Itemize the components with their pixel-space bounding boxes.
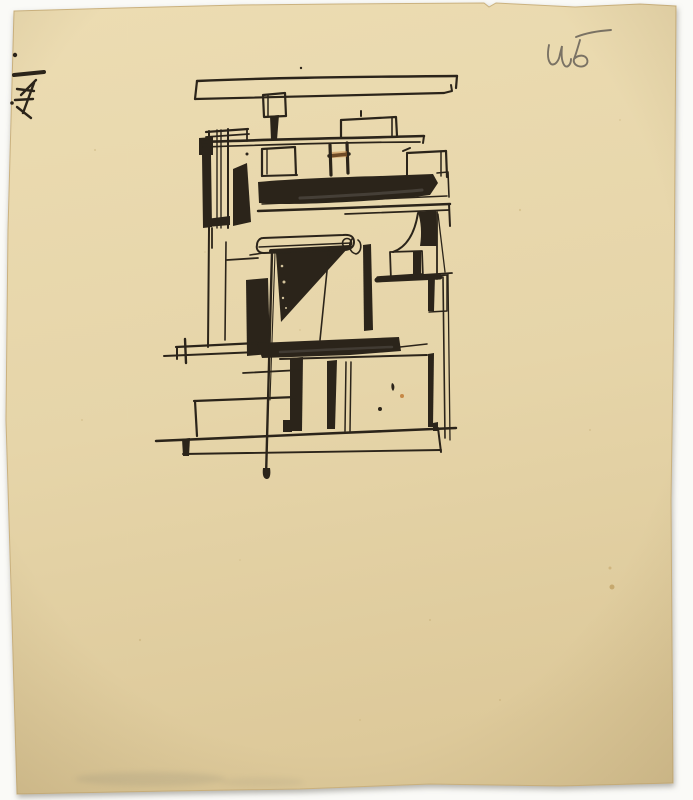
right-wall-dark-segment [428, 353, 434, 427]
corner-mark-dot-lower [10, 101, 14, 105]
lower-thin-v1 [345, 362, 346, 431]
h-column-warm-wash [332, 151, 347, 158]
top-beam-right [456, 76, 457, 88]
rust-speck-on-drawing [400, 394, 404, 398]
stain-spot-main [610, 585, 615, 590]
lower-door-bar [290, 357, 303, 431]
window-left-sill [262, 175, 297, 176]
ground-cross-vertical [185, 339, 186, 363]
stain-spot-faint [609, 567, 612, 570]
ink-dot-a [378, 407, 382, 411]
corner-mark-tick-2 [15, 99, 33, 100]
h-column-right [347, 143, 348, 173]
left-wall-line-2 [225, 242, 226, 340]
lower-thin-v2 [350, 362, 351, 431]
scan-stage: Hand-drawn constructivist architectural … [0, 0, 693, 800]
lower-door-stub [283, 420, 292, 432]
ink-speck-c [300, 67, 302, 69]
scanned-sketch: Hand-drawn constructivist architectural … [0, 0, 693, 800]
h-column-left [330, 145, 331, 175]
left-wall-line-1 [208, 230, 209, 347]
window-right-right [446, 151, 447, 177]
upper-shelf-cap [423, 136, 424, 143]
ink-speck-b [246, 153, 249, 156]
arch-box-dark-edge [413, 251, 421, 277]
mid-shelf-cap [449, 204, 450, 226]
corner-mark-dot-upper [13, 53, 17, 57]
right-window-dark-edge [428, 276, 435, 311]
